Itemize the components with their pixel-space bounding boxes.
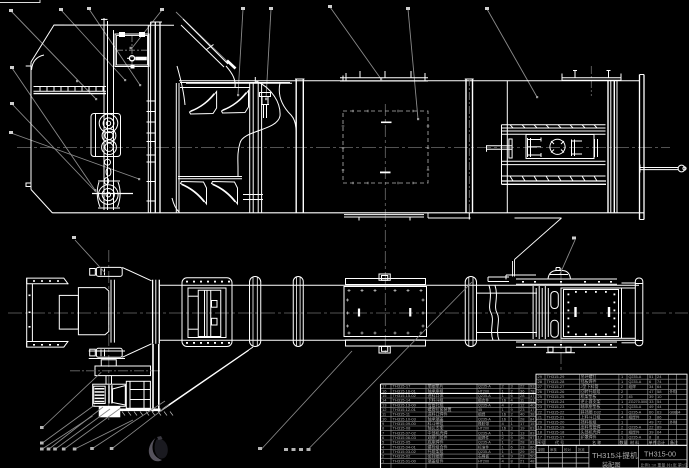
- svg-text:材 料: 材 料: [630, 439, 639, 445]
- svg-text:单件: 单件: [649, 439, 657, 445]
- svg-text:8: 8: [511, 458, 514, 463]
- svg-text:Q235-A: Q235-A: [478, 394, 491, 398]
- svg-text:轴承座垫板: 轴承座垫板: [581, 403, 601, 409]
- svg-text:GB894: GB894: [670, 410, 681, 414]
- svg-text:Q235-A: Q235-A: [478, 417, 491, 421]
- svg-text:48: 48: [530, 458, 535, 463]
- svg-text:外购: 外购: [670, 389, 678, 394]
- svg-text:名 称: 名 称: [592, 439, 601, 445]
- svg-text:Q235-A: Q235-A: [478, 385, 491, 389]
- svg-text:组焊件: 组焊件: [478, 435, 489, 440]
- svg-text:Q235-A: Q235-A: [629, 425, 642, 429]
- svg-text:数量: 数量: [620, 439, 628, 445]
- svg-text:Q235-A: Q235-A: [629, 375, 642, 379]
- svg-text:ZG270-500: ZG270-500: [629, 400, 648, 404]
- svg-text:序号: 序号: [537, 439, 545, 445]
- svg-text:总计: 总计: [657, 439, 665, 445]
- svg-text:TH315-00: TH315-00: [644, 450, 676, 459]
- svg-text:TH315斗提机: TH315斗提机: [592, 450, 638, 460]
- svg-text:21: 21: [520, 458, 525, 463]
- svg-text:Q235-A: Q235-A: [478, 403, 491, 407]
- svg-text:HT200: HT200: [478, 427, 489, 431]
- svg-text:HT200: HT200: [478, 389, 489, 393]
- svg-text:组焊件: 组焊件: [629, 429, 640, 434]
- svg-text:护罩焊件: 护罩焊件: [581, 433, 597, 439]
- svg-text:TH315.01-00: TH315.01-00: [393, 458, 417, 463]
- svg-text:制图: 制图: [538, 447, 545, 452]
- svg-text:审核: 审核: [550, 447, 557, 452]
- svg-text:Q235-A: Q235-A: [629, 435, 642, 439]
- svg-text:批准: 批准: [578, 447, 585, 452]
- svg-text:组合件: 组合件: [478, 398, 489, 403]
- svg-text:装配图: 装配图: [602, 461, 621, 468]
- svg-text:4: 4: [502, 458, 505, 463]
- svg-text:1: 1: [382, 458, 385, 463]
- svg-text:Q235-A: Q235-A: [629, 410, 642, 414]
- svg-text:端盖组件: 端盖组件: [428, 457, 444, 463]
- svg-text:Q235-A: Q235-A: [478, 441, 491, 445]
- svg-text:45: 45: [478, 408, 482, 412]
- svg-text:45: 45: [629, 395, 633, 399]
- svg-text:8: 8: [649, 434, 652, 439]
- svg-text:Q235-A: Q235-A: [629, 380, 642, 384]
- svg-text:橡胶带: 橡胶带: [478, 421, 489, 426]
- svg-text:组焊件: 组焊件: [629, 414, 640, 419]
- svg-text:组焊: 组焊: [629, 384, 637, 389]
- svg-text:挡板焊件: 挡板焊件: [581, 378, 597, 384]
- svg-text:Q235-A: Q235-A: [478, 450, 491, 454]
- svg-text:备注: 备注: [670, 439, 678, 445]
- svg-text:代 号: 代 号: [555, 439, 564, 445]
- svg-text:外购: 外购: [670, 419, 678, 424]
- svg-text:1: 1: [621, 434, 624, 439]
- svg-text:HT200: HT200: [478, 459, 489, 463]
- svg-text:TH315-17: TH315-17: [547, 434, 566, 439]
- svg-text:Q235-A: Q235-A: [629, 405, 642, 409]
- svg-text:17: 17: [538, 434, 543, 439]
- svg-text:Q235-A: Q235-A: [478, 431, 491, 435]
- svg-text:比例1:10 重量 共1张 第1张: 比例1:10 重量 共1张 第1张: [641, 461, 689, 467]
- svg-text:石棉板: 石棉板: [478, 454, 489, 459]
- svg-text:校对: 校对: [564, 447, 571, 452]
- svg-text:标准件: 标准件: [478, 444, 489, 449]
- svg-text:8: 8: [657, 434, 660, 439]
- svg-text:组焊: 组焊: [478, 412, 486, 417]
